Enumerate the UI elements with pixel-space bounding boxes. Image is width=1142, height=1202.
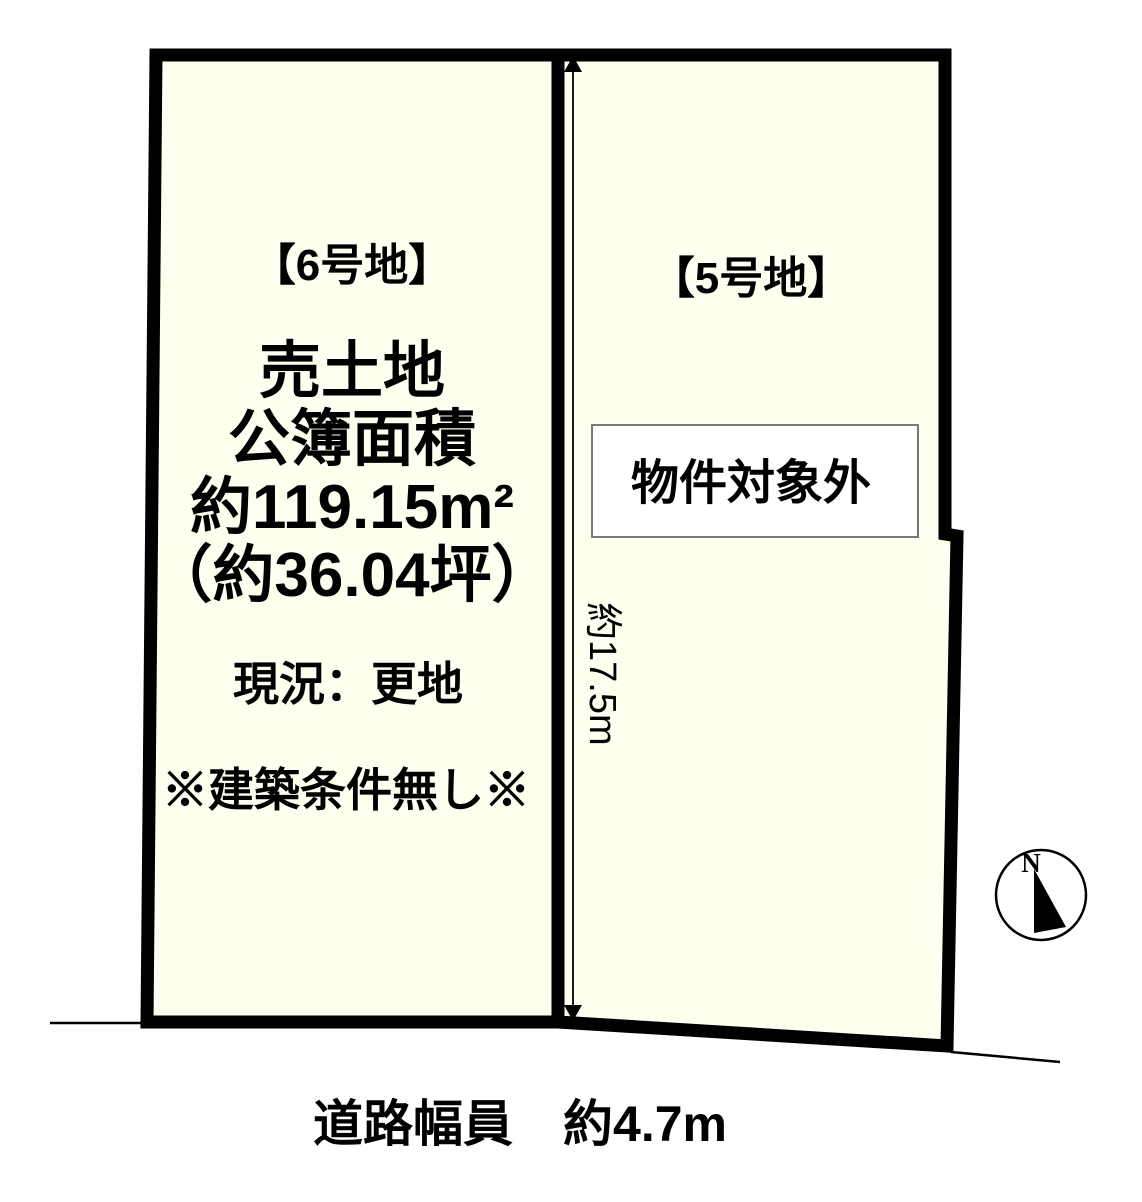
land-plot-diagram: 約17.5m 【6号地】 売土地 公簿面積 約119.15m² （約36.04坪… (0, 0, 1142, 1197)
parcel-6-current-status: 現況：更地 (233, 658, 463, 710)
parcel-6-line-area-tsubo: （約36.04坪） (150, 540, 553, 610)
parcel-5-title: 【5号地】 (651, 254, 851, 303)
depth-dimension-label: 約17.5m (581, 602, 623, 746)
parcel-5-shape (558, 55, 957, 1046)
parcel-6-title: 【6号地】 (252, 241, 452, 290)
north-letter: N (1021, 848, 1041, 878)
excluded-property-label: 物件対象外 (631, 457, 871, 510)
parcel-6-line-registered-area: 公簿面積 (228, 405, 476, 474)
parcel-6-line-area-sqm: 約119.15m² (190, 473, 514, 542)
road-width-label: 道路幅員 約4.7m (313, 1096, 727, 1152)
north-compass: N (996, 848, 1086, 940)
road-edge-line-right (951, 1052, 1060, 1062)
parcel-6-line-sale: 売土地 (259, 337, 445, 406)
excluded-property-box: 物件対象外 (592, 425, 918, 537)
parcel-6-no-building-conditions-note: ※建築条件無し※ (162, 764, 530, 816)
plot-plan-canvas: 約17.5m 【6号地】 売土地 公簿面積 約119.15m² （約36.04坪… (0, 0, 1142, 1197)
